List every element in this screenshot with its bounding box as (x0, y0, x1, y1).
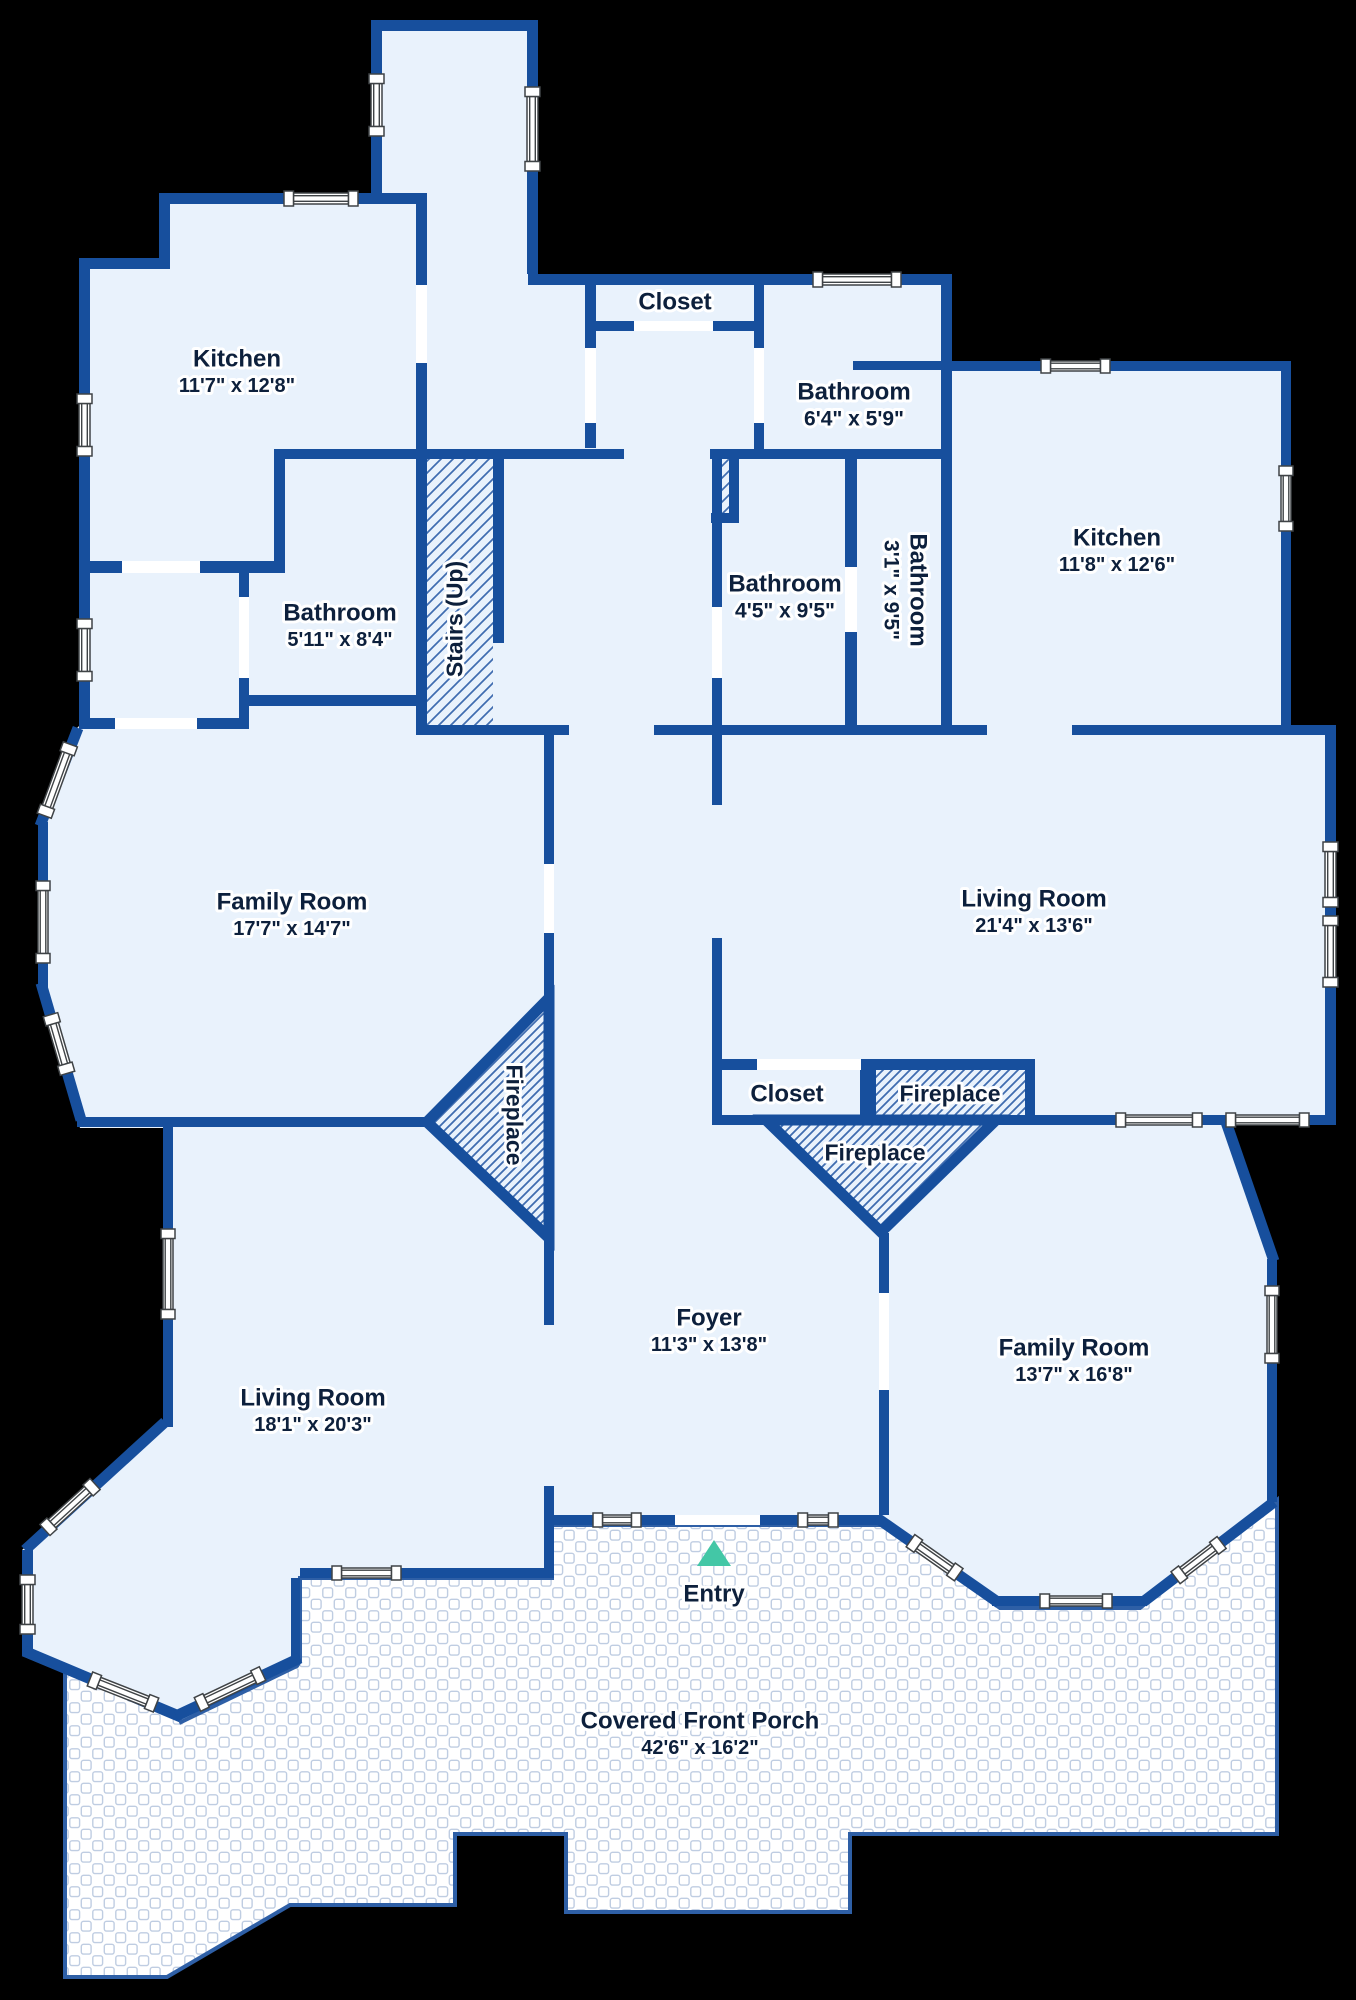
svg-text:11'8" x 12'6": 11'8" x 12'6" (1059, 554, 1175, 576)
svg-text:Bathroom: Bathroom (797, 379, 910, 406)
svg-text:3'1" x 9'5": 3'1" x 9'5" (879, 540, 902, 640)
svg-text:Living Room: Living Room (961, 886, 1106, 913)
svg-text:Bathroom: Bathroom (728, 571, 841, 598)
svg-text:42'6" x 16'2": 42'6" x 16'2" (641, 1737, 758, 1759)
svg-text:21'4" x 13'6": 21'4" x 13'6" (975, 915, 1092, 937)
svg-text:Fireplace: Fireplace (900, 1080, 1001, 1106)
svg-text:Kitchen: Kitchen (193, 346, 281, 373)
svg-text:Bathroom: Bathroom (283, 600, 396, 627)
svg-text:Foyer: Foyer (676, 1305, 741, 1332)
svg-text:6'4" x 5'9": 6'4" x 5'9" (804, 408, 904, 431)
svg-text:11'7" x 12'8": 11'7" x 12'8" (179, 375, 295, 397)
svg-text:Kitchen: Kitchen (1073, 525, 1161, 552)
svg-text:18'1" x 20'3": 18'1" x 20'3" (254, 1414, 371, 1436)
svg-text:4'5" x 9'5": 4'5" x 9'5" (735, 600, 835, 623)
svg-text:Closet: Closet (638, 289, 711, 316)
svg-text:Living Room: Living Room (240, 1385, 385, 1412)
svg-text:Bathroom: Bathroom (904, 533, 931, 646)
svg-text:17'7" x 14'7": 17'7" x 14'7" (233, 918, 350, 940)
svg-text:Entry: Entry (683, 1581, 745, 1608)
svg-text:Fireplace: Fireplace (825, 1139, 926, 1165)
svg-text:Closet: Closet (750, 1081, 823, 1108)
svg-text:Covered Front Porch: Covered Front Porch (581, 1708, 820, 1735)
svg-text:Family Room: Family Room (999, 1335, 1150, 1362)
svg-text:Stairs (Up): Stairs (Up) (441, 561, 467, 677)
svg-text:5'11" x 8'4": 5'11" x 8'4" (287, 629, 392, 651)
svg-text:Family Room: Family Room (217, 889, 368, 916)
svg-text:11'3" x 13'8": 11'3" x 13'8" (651, 1334, 767, 1356)
svg-text:Fireplace: Fireplace (502, 1065, 528, 1166)
svg-text:13'7" x 16'8": 13'7" x 16'8" (1015, 1364, 1132, 1386)
